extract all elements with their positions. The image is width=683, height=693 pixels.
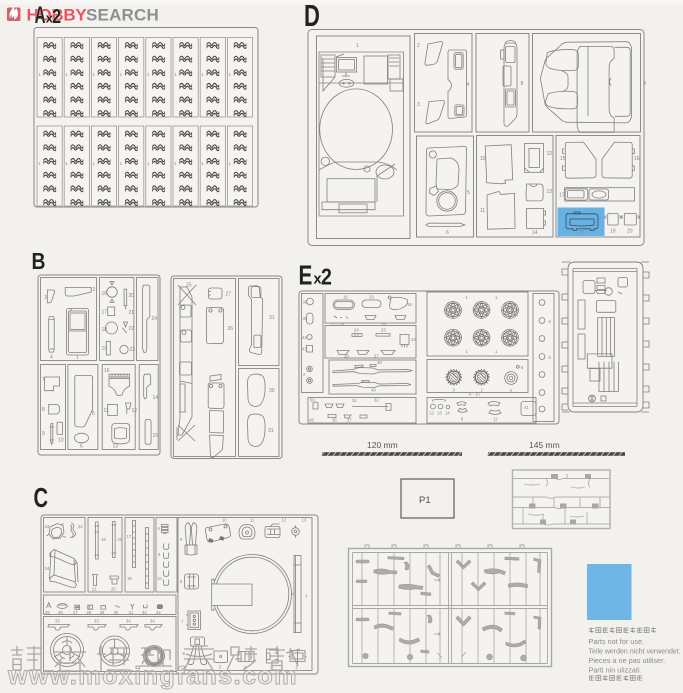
svg-text:5: 5 [467,190,470,196]
svg-text:15: 15 [153,433,159,439]
svg-text:22: 22 [129,326,135,332]
svg-text:1: 1 [356,43,359,49]
svg-text:25: 25 [186,283,192,289]
svg-text:12: 12 [429,411,434,416]
svg-text:Teile werden nicht verwendet.: Teile werden nicht verwendet. [589,649,681,656]
svg-text:33: 33 [94,619,99,624]
svg-text:21: 21 [129,310,135,316]
svg-text:11: 11 [250,518,255,523]
svg-text:13: 13 [302,518,307,523]
svg-text:13: 13 [547,189,553,195]
svg-text:49: 49 [371,388,376,393]
svg-text:23: 23 [130,347,136,353]
svg-text:120 mm: 120 mm [367,440,398,450]
svg-text:25: 25 [45,610,50,615]
svg-text:20: 20 [118,537,123,542]
svg-text:145 mm: 145 mm [529,440,560,450]
svg-text:Parti nin ulizzati.: Parti nin ulizzati. [589,666,642,675]
svg-text:4: 4 [50,355,53,361]
svg-text:8: 8 [521,81,524,87]
svg-text:10: 10 [480,156,486,162]
svg-text:4: 4 [467,82,470,88]
svg-text:D: D [304,0,320,33]
svg-text:16: 16 [634,156,640,162]
svg-text:19: 19 [101,537,106,542]
svg-text:5: 5 [92,411,95,417]
svg-text:29: 29 [100,610,105,615]
svg-text:28: 28 [87,610,92,615]
svg-text:19: 19 [610,229,616,235]
svg-text:20: 20 [627,229,633,235]
svg-text:www.moxingfans.com: www.moxingfans.com [7,662,298,690]
svg-text:P1: P1 [419,495,431,506]
svg-text:17: 17 [127,534,132,539]
svg-text:13: 13 [437,411,442,416]
svg-text:34: 34 [352,398,357,403]
svg-text:28: 28 [344,354,349,359]
svg-text:Parts not for use.: Parts not for use. [589,637,645,646]
svg-text:6: 6 [80,444,83,450]
svg-text:17: 17 [102,310,108,316]
svg-text:39: 39 [303,300,308,305]
svg-text:10: 10 [222,518,227,523]
svg-text:30: 30 [269,388,275,394]
svg-text:15: 15 [157,576,162,581]
svg-text:2: 2 [321,264,332,290]
svg-text:3: 3 [417,102,420,108]
svg-text:42: 42 [302,335,307,340]
svg-text:12: 12 [282,518,287,523]
svg-text:SEARCH: SEARCH [86,5,159,24]
svg-text:24: 24 [152,316,158,322]
svg-text:32: 32 [142,610,147,615]
svg-text:10: 10 [58,438,64,444]
svg-text:23: 23 [381,328,386,333]
svg-text:9: 9 [42,431,45,437]
svg-text:2: 2 [93,287,96,293]
svg-text:16: 16 [102,291,108,297]
svg-text:8: 8 [42,407,45,413]
svg-text:3: 3 [44,295,47,301]
svg-text:22: 22 [78,524,83,529]
svg-text:11: 11 [493,417,498,422]
svg-text:E: E [299,261,313,292]
svg-text:15: 15 [407,302,412,307]
svg-text:1: 1 [76,355,79,361]
svg-text:11: 11 [104,408,109,414]
svg-text:15: 15 [560,156,566,162]
svg-text:2: 2 [52,5,61,27]
svg-text:12: 12 [547,151,553,157]
svg-text:43: 43 [302,347,307,352]
svg-text:50: 50 [310,398,315,403]
svg-text:34: 34 [156,610,161,615]
svg-text:9 - 10: 9 - 10 [469,392,480,397]
svg-text:23: 23 [45,524,50,529]
svg-text:34: 34 [126,619,131,624]
svg-text:30: 30 [114,610,119,615]
svg-text:20: 20 [129,293,135,299]
svg-text:11: 11 [480,208,485,214]
svg-text:22: 22 [411,337,416,342]
svg-text:24: 24 [354,328,359,333]
svg-text:14: 14 [445,411,450,416]
svg-text:B: B [31,250,45,275]
svg-text:20: 20 [111,587,116,592]
svg-text:31: 31 [129,610,134,615]
svg-text:27: 27 [374,354,379,359]
svg-text:13: 13 [113,444,119,450]
svg-text:18: 18 [102,327,108,333]
svg-text:19: 19 [102,346,108,352]
svg-text:31: 31 [269,315,275,321]
svg-text:A: A [35,3,46,29]
svg-text:12: 12 [132,408,138,414]
svg-text:24: 24 [45,566,50,571]
svg-text:26: 26 [228,326,234,332]
svg-text:16: 16 [343,295,348,300]
svg-text:33: 33 [55,619,60,624]
svg-text:9: 9 [643,81,646,87]
svg-text:31: 31 [268,428,274,434]
svg-text:Pieces a ne pas utiliser.: Pieces a ne pas utiliser. [589,656,666,665]
svg-text:16: 16 [104,368,110,374]
svg-text:34: 34 [150,619,155,624]
svg-text:18: 18 [578,229,584,235]
svg-text:14: 14 [532,230,538,236]
svg-text:27: 27 [226,292,232,298]
svg-text:6: 6 [446,230,449,236]
svg-text:32: 32 [374,398,379,403]
svg-text:C: C [34,483,49,514]
svg-text:30: 30 [377,360,382,365]
svg-text:2: 2 [417,43,420,49]
svg-text:46: 46 [303,316,308,321]
svg-text:33: 33 [369,295,374,300]
svg-text:26: 26 [58,610,63,615]
svg-text:21: 21 [92,587,97,592]
svg-text:14: 14 [153,395,159,401]
svg-text:7: 7 [42,377,45,383]
svg-text:37: 37 [347,418,352,423]
svg-text:17: 17 [559,193,565,199]
svg-text:18: 18 [127,576,132,581]
svg-text:48: 48 [309,418,314,423]
svg-text:41: 41 [524,405,529,410]
svg-text:27: 27 [73,610,78,615]
svg-text:36: 36 [332,418,337,423]
